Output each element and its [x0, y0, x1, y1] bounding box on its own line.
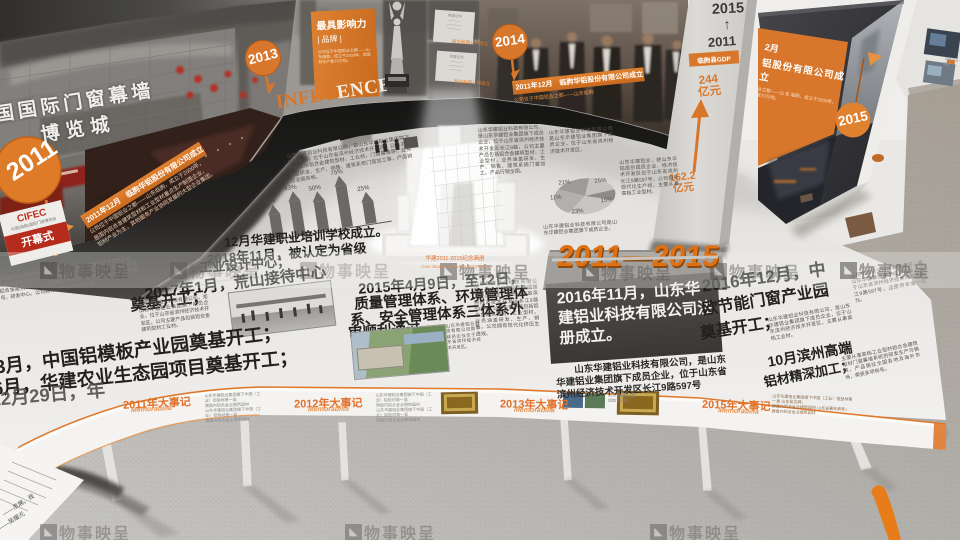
svg-text:15%: 15%	[600, 197, 613, 204]
svg-text:50%: 50%	[308, 184, 322, 193]
svg-text:25%: 25%	[357, 184, 371, 193]
svg-text:23%: 23%	[571, 208, 584, 215]
svg-text:38%: 38%	[263, 197, 277, 206]
svg-text:43%: 43%	[284, 184, 298, 193]
svg-text:11%: 11%	[550, 194, 563, 201]
